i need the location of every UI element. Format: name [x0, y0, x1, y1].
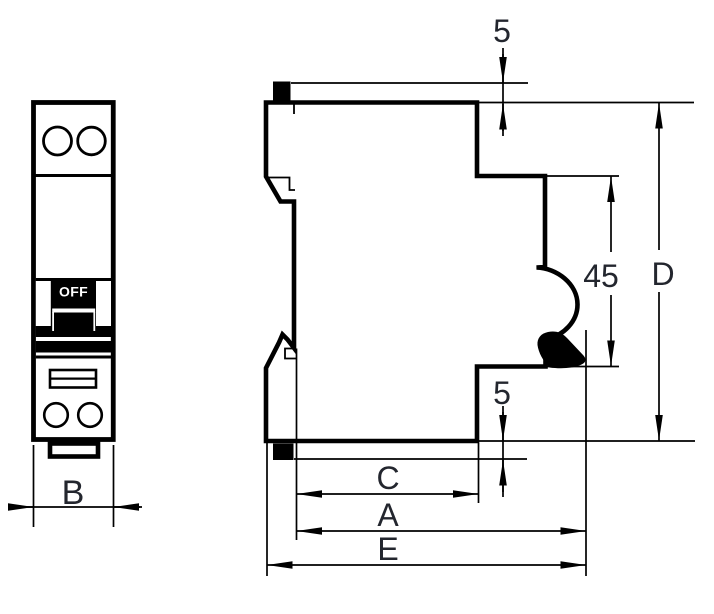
dimension-front-panel-height: 45 — [583, 177, 619, 367]
dim-label-front-panel-height: 45 — [583, 258, 619, 294]
dim-label-bottom-clip-offset: 5 — [493, 375, 511, 411]
dimension-overall-height: D — [651, 103, 674, 441]
stripe-band — [36, 341, 111, 353]
stripe-thin-line — [36, 356, 111, 359]
dim-label-depth-a: A — [377, 497, 399, 533]
dimension-depth-c: C — [297, 460, 479, 496]
bottom-terminal-screw-right — [78, 403, 102, 427]
dim-label-top-clip-offset: 5 — [493, 13, 511, 49]
toggle-seam-left — [52, 312, 54, 331]
side-bottom-clip-tab — [273, 444, 294, 461]
toggle-seam-right — [93, 312, 95, 331]
switch-notch-left — [36, 281, 51, 326]
dimension-drawing-canvas: OFF B — [0, 0, 714, 614]
dimension-depth-e: E — [267, 531, 586, 567]
top-terminal-screw-right — [78, 127, 106, 155]
dim-label-b: B — [62, 474, 85, 512]
dimension-bottom-clip-offset: 5 — [493, 375, 511, 497]
side-top-clip-tab — [273, 82, 291, 104]
top-terminal-screw-left — [44, 127, 72, 155]
toggle-grip-line — [52, 309, 95, 313]
dimension-top-clip-offset: 5 — [493, 13, 511, 136]
bottom-terminal-screw-left — [44, 403, 68, 427]
front-din-clip-tab — [50, 444, 98, 457]
dimension-depth-a: A — [297, 497, 587, 533]
switch-state-label: OFF — [59, 284, 88, 300]
front-view: OFF B — [8, 103, 142, 528]
dim-label-overall-height: D — [651, 256, 674, 292]
dim-label-depth-c: C — [376, 460, 399, 496]
side-profile-outline — [266, 103, 578, 442]
front-body-outline — [34, 103, 114, 440]
drawing-svg: OFF B — [0, 0, 714, 614]
switch-notch-right — [96, 281, 111, 326]
dim-label-depth-e: E — [377, 531, 398, 567]
side-view — [266, 82, 586, 541]
